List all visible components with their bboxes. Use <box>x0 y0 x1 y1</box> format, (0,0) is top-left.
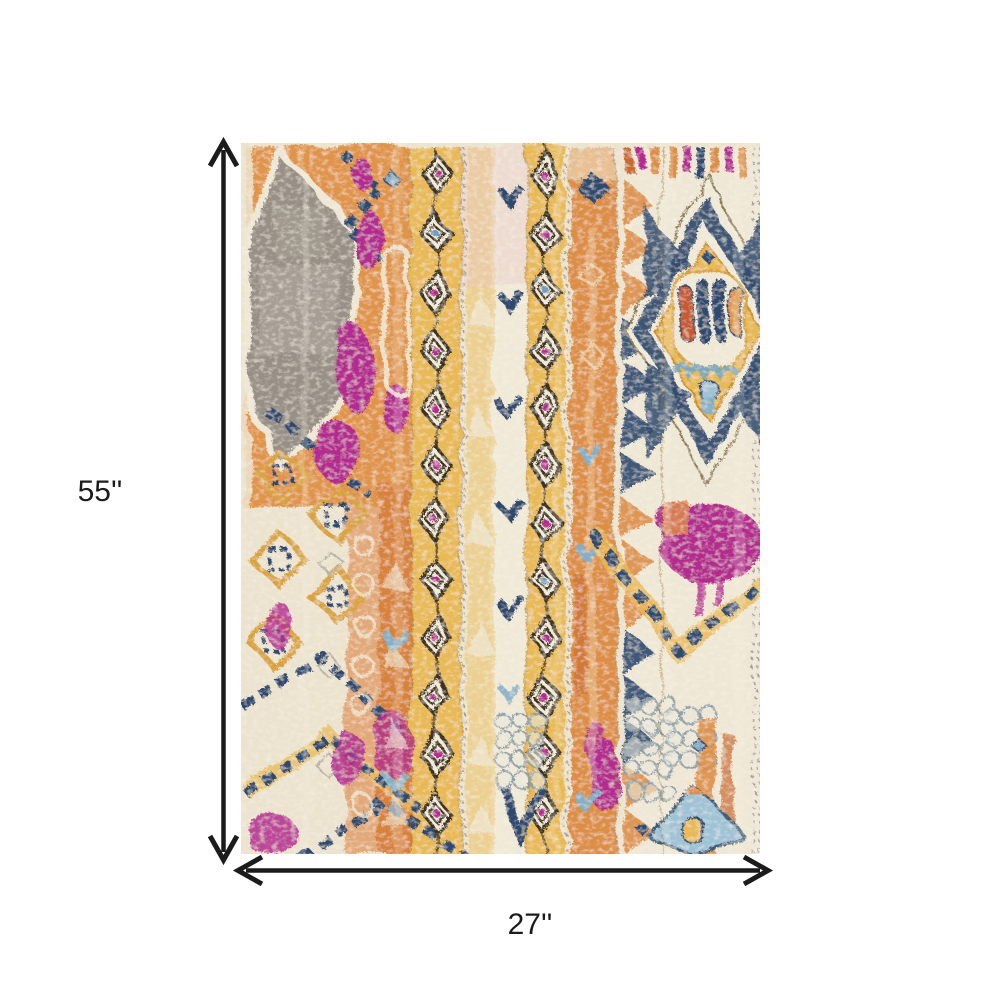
width-arrow <box>238 857 768 884</box>
page-canvas: 55'' 27'' <box>0 0 1000 1000</box>
height-arrow <box>210 142 237 860</box>
height-label: 55'' <box>66 477 134 507</box>
rug-image <box>241 143 760 854</box>
rug-artwork <box>241 143 760 854</box>
width-label: 27'' <box>496 910 564 940</box>
